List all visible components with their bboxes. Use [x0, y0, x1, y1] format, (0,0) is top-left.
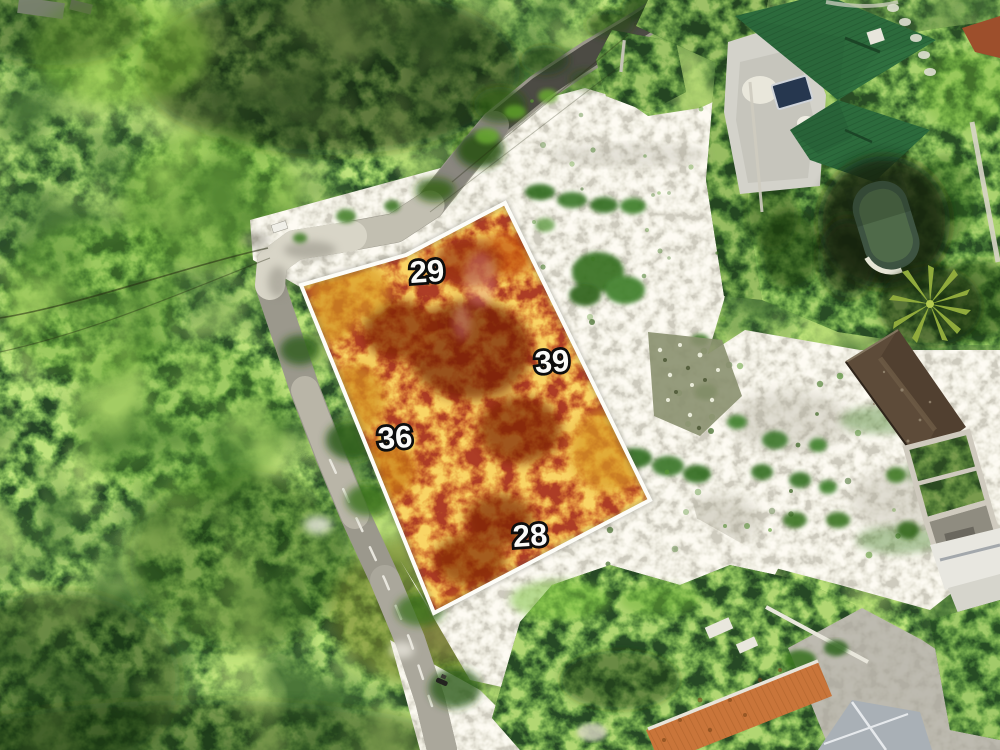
svg-text:29: 29 [409, 253, 446, 290]
svg-text:28: 28 [512, 517, 549, 554]
svg-text:39: 39 [534, 343, 571, 380]
svg-text:36: 36 [377, 419, 414, 456]
